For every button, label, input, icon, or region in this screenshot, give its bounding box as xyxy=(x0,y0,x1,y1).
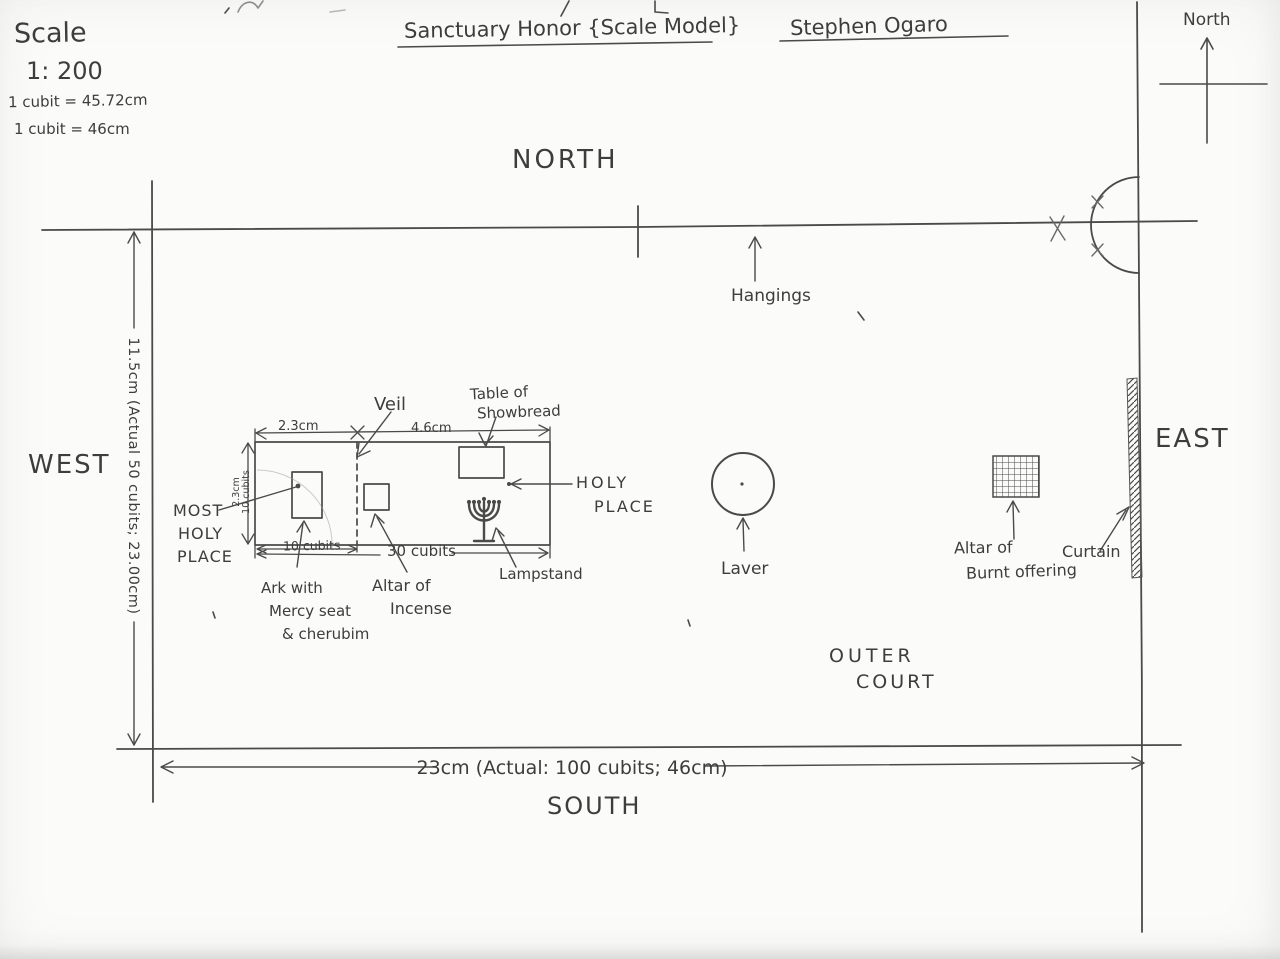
scale-cubit-line1: 1 cubit = 45.72cm xyxy=(8,91,148,111)
author-name: Stephen Ogaro xyxy=(790,12,948,40)
scale-heading: Scale xyxy=(14,17,87,49)
showbread-label-line1: Table of xyxy=(470,382,529,403)
construction-arc xyxy=(257,470,332,548)
most-holy-place-label-line1: MOST xyxy=(173,501,223,520)
sanctuary-length-dim: 30 cubits xyxy=(387,542,456,560)
most-holy-width-dim: 2.3cm xyxy=(278,419,319,434)
direction-south: SOUTH xyxy=(547,792,641,820)
direction-east: EAST xyxy=(1155,424,1230,454)
ark-label-line3: & cherubim xyxy=(282,625,369,643)
most-holy-place-label-line3: PLACE xyxy=(177,547,233,566)
ark-rect xyxy=(292,472,322,518)
compass-north-label: North xyxy=(1183,10,1231,30)
compass-cross xyxy=(1160,38,1267,143)
holy-place-label-line1: HOLY xyxy=(576,473,629,492)
curtain-label: Curtain xyxy=(1062,542,1121,561)
most-holy-place-label-line2: HOLY xyxy=(178,524,223,543)
sanctuary-plan-page: Scale 1: 200 1 cubit = 45.72cm 1 cubit =… xyxy=(0,0,1280,959)
laver-label: Laver xyxy=(721,559,768,579)
laver-arrow xyxy=(737,518,749,551)
most-holy-length-dim: 10 cubits xyxy=(283,537,341,553)
outer-court-label-line1: OUTER xyxy=(829,645,915,667)
direction-north: NORTH xyxy=(512,145,619,175)
burnt-offering-label-line2: Burnt offering xyxy=(966,560,1077,583)
burnt-offering-altar-grid xyxy=(993,456,1039,497)
scale-ratio: 1: 200 xyxy=(26,57,103,85)
leader-arrows xyxy=(219,237,1129,572)
west-dimension-text: 11.5cm (Actual 50 cubits; 23.00cm) xyxy=(125,337,141,614)
south-dimension-text: 23cm (Actual: 100 cubits; 46cm) xyxy=(416,757,727,779)
photo-edge-shadow xyxy=(0,945,1280,959)
incense-altar-rect xyxy=(364,484,389,510)
scale-cubit-line2: 1 cubit = 46cm xyxy=(14,120,130,138)
outer-court-label-line2: COURT xyxy=(856,671,937,693)
menorah-icon xyxy=(467,497,501,541)
holy-place-label-line2: PLACE xyxy=(594,497,655,516)
showbread-table-rect xyxy=(459,447,504,478)
holy-place-arrow xyxy=(507,479,572,489)
hangings-arrow xyxy=(749,237,761,281)
sanctuary-height-dim-line2: 10 cubits xyxy=(242,470,252,514)
showbread-label-line2: Showbread xyxy=(477,402,561,423)
holy-width-dim: 4.6cm xyxy=(411,421,452,436)
veil-arrow xyxy=(357,412,391,457)
burnt-offering-label-line1: Altar of xyxy=(954,537,1013,557)
lampstand-label: Lampstand xyxy=(499,565,583,583)
laver-circle xyxy=(712,453,774,515)
burnt-offering-arrow xyxy=(1007,501,1019,539)
ark-label-line2: Mercy seat xyxy=(269,602,351,620)
incense-altar-label-line2: Incense xyxy=(390,599,452,618)
ark-label-line1: Ark with xyxy=(261,579,323,597)
lampstand-arrow xyxy=(492,528,516,567)
east-gate-arc xyxy=(1050,177,1139,273)
direction-west: WEST xyxy=(28,450,111,480)
hangings-label: Hangings xyxy=(731,286,811,306)
veil-label: Veil xyxy=(374,394,406,415)
incense-altar-label-line1: Altar of xyxy=(372,576,431,595)
sanctuary-height-dim: 2.3cm 10 cubits xyxy=(232,470,252,514)
